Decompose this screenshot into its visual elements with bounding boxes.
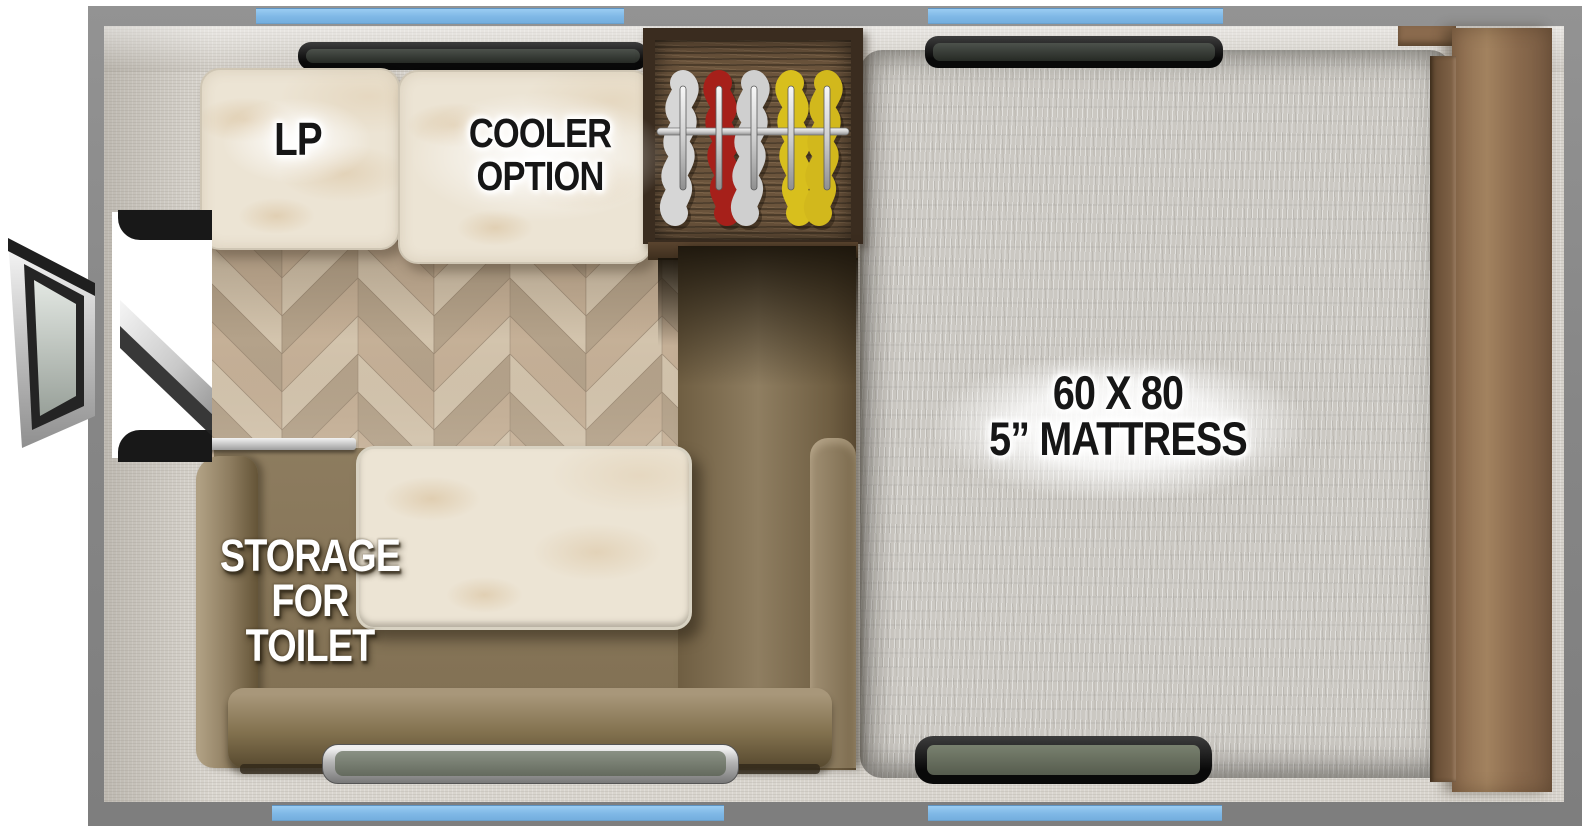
closet-clothes <box>643 28 863 244</box>
storage-text-line3: TOILET <box>213 623 406 668</box>
lp-label: LP <box>200 112 396 166</box>
cooler-text-line1: COOLER <box>435 112 645 155</box>
bed-window-top <box>925 36 1223 68</box>
galley-window <box>298 42 648 70</box>
entry-doorway <box>104 208 214 466</box>
dinette-window <box>322 744 739 784</box>
bed-window-top-glass <box>933 43 1215 61</box>
herringbone-floor <box>206 240 688 462</box>
door-jamb-bottom <box>118 430 212 462</box>
storage-text-line2: FOR <box>213 578 406 623</box>
cooler-option-label: COOLER OPTION <box>415 112 665 198</box>
headboard-panel <box>1452 28 1552 792</box>
wardrobe-closet <box>643 28 863 244</box>
mattress-text-line1: 60 X 80 <box>967 370 1269 416</box>
entry-step-strip <box>204 438 356 450</box>
storage-toilet-label: STORAGE FOR TOILET <box>195 533 425 668</box>
mattress-size-label: 60 X 80 5” MATTRESS <box>938 370 1298 462</box>
headboard-groove <box>1430 56 1456 782</box>
lp-text: LP <box>216 112 381 166</box>
backrest-shadow <box>678 246 856 386</box>
window-strip-top-left <box>256 8 624 24</box>
headboard-cap <box>1398 26 1456 46</box>
cooler-text-line2: OPTION <box>435 155 645 198</box>
window-strip-bottom-left <box>272 805 724 821</box>
storage-text-line1: STORAGE <box>213 533 406 578</box>
door-jamb-top <box>118 210 212 240</box>
camper-floorplan: LP COOLER OPTION 60 X 80 5” MATTRESS STO… <box>0 0 1582 829</box>
mattress-text-line2: 5” MATTRESS <box>967 416 1269 462</box>
galley-window-glass <box>306 49 640 63</box>
window-strip-top-right <box>928 8 1223 24</box>
bed-window-bottom <box>915 736 1212 784</box>
window-strip-bottom-right <box>928 805 1222 821</box>
entry-door-open <box>0 228 100 458</box>
bed-window-bottom-glass <box>927 745 1200 775</box>
dinette-window-glass <box>335 751 726 776</box>
